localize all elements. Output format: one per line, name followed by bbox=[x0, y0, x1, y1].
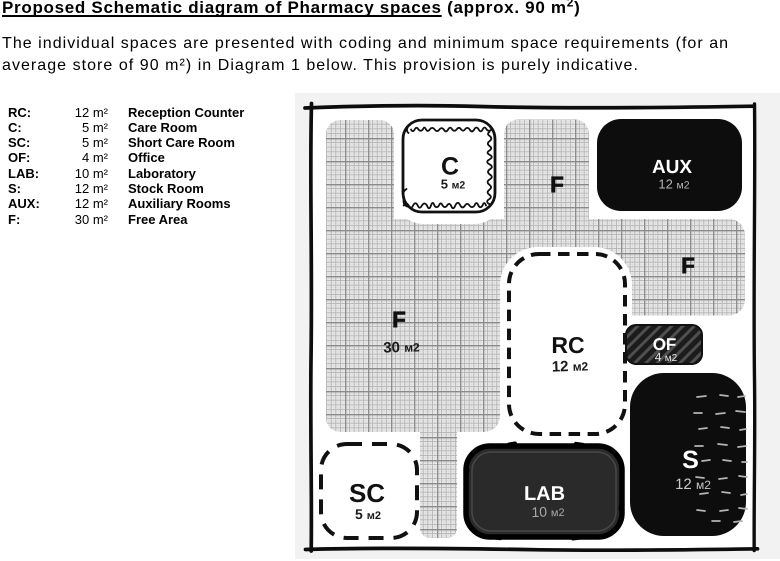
svg-text:5 м2: 5 м2 bbox=[441, 176, 466, 191]
svg-text:F: F bbox=[681, 253, 694, 278]
svg-text:30 м2: 30 м2 bbox=[383, 338, 420, 356]
svg-text:4 м2: 4 м2 bbox=[655, 350, 678, 364]
svg-text:SC: SC bbox=[349, 478, 385, 508]
svg-text:12 м2: 12 м2 bbox=[675, 476, 711, 493]
svg-text:S: S bbox=[682, 446, 699, 474]
svg-text:F: F bbox=[550, 172, 563, 197]
svg-text:AUX: AUX bbox=[652, 157, 692, 178]
svg-text:RC: RC bbox=[551, 332, 584, 358]
svg-text:LAB: LAB bbox=[524, 483, 565, 505]
svg-text:12 м2: 12 м2 bbox=[552, 357, 589, 375]
svg-text:12 м2: 12 м2 bbox=[658, 176, 689, 191]
svg-text:F: F bbox=[392, 307, 405, 332]
